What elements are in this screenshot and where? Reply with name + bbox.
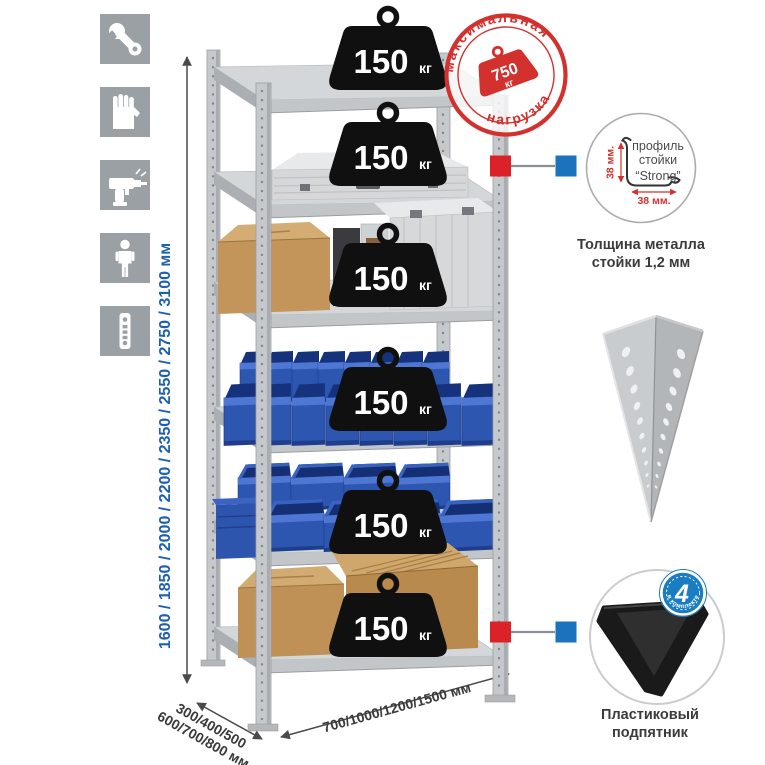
weight-value: 150 (353, 507, 408, 544)
weight-unit: кг (419, 524, 432, 540)
depth-dimension: 300/400/500 600/700/800 мм (155, 694, 262, 765)
foot-caption-line2: подпятник (612, 725, 689, 741)
connector-blue-square-top (556, 156, 577, 177)
shelving-infographic: 1600 / 1850 / 2000 / 2200 / 2350 / 2550 … (0, 0, 765, 765)
profile-detail-circle: 38 мм. 38 мм. профиль стойки “Strong” (587, 114, 696, 223)
kit-badge: 4 в комплекте (660, 570, 707, 617)
foot-caption-line1: Пластиковый (601, 707, 699, 723)
profile-label-line3: “Strong” (635, 169, 680, 183)
wrench-icon (100, 14, 150, 64)
profile-caption-line1: Толщина металла (577, 237, 706, 253)
cardboard-box-shelf3 (218, 222, 330, 314)
weight-unit: кг (419, 60, 432, 76)
connector-bottom (490, 622, 577, 643)
cardboard-box-left (238, 566, 344, 658)
weight-unit: кг (419, 156, 432, 172)
profile-dim-horizontal: 38 мм. (637, 195, 670, 207)
weight-value: 150 (353, 384, 408, 421)
weight-value: 150 (353, 43, 408, 80)
post-profile-icon (100, 306, 150, 356)
weight-badge-2: 150 кг (329, 105, 447, 187)
connector-red-square-bottom (490, 622, 511, 643)
profile-caption-line2: стойки 1,2 мм (592, 255, 691, 271)
profile-dim-vertical: 38 мм. (605, 146, 617, 179)
gloves-icon (100, 87, 150, 137)
connector-top (490, 156, 577, 177)
weight-unit: кг (419, 277, 432, 293)
weight-value: 150 (353, 610, 408, 647)
perforated-post-photo (603, 316, 703, 522)
profile-label-line1: профиль (632, 139, 684, 153)
rear-left-post (201, 50, 225, 666)
connector-red-square-top (490, 156, 511, 177)
weight-value: 150 (353, 139, 408, 176)
drill-icon (100, 160, 150, 210)
height-dimension: 1600 / 1850 / 2000 / 2200 / 2350 / 2550 … (157, 57, 187, 683)
profile-label-line2: стойки (639, 153, 677, 167)
connector-blue-square-bottom (556, 622, 577, 643)
width-dimension: 700/1000/1200/1500 мм (281, 674, 509, 737)
width-dimension-label: 700/1000/1200/1500 мм (321, 679, 473, 735)
weight-badge-1: 150 кг (329, 9, 447, 91)
height-dimension-label: 1600 / 1850 / 2000 / 2200 / 2350 / 2550 … (157, 243, 174, 649)
weight-value: 150 (353, 260, 408, 297)
weight-unit: кг (419, 401, 432, 417)
weight-unit: кг (419, 627, 432, 643)
scene: 1600 / 1850 / 2000 / 2200 / 2350 / 2550 … (0, 0, 765, 765)
person-icon (100, 233, 150, 283)
